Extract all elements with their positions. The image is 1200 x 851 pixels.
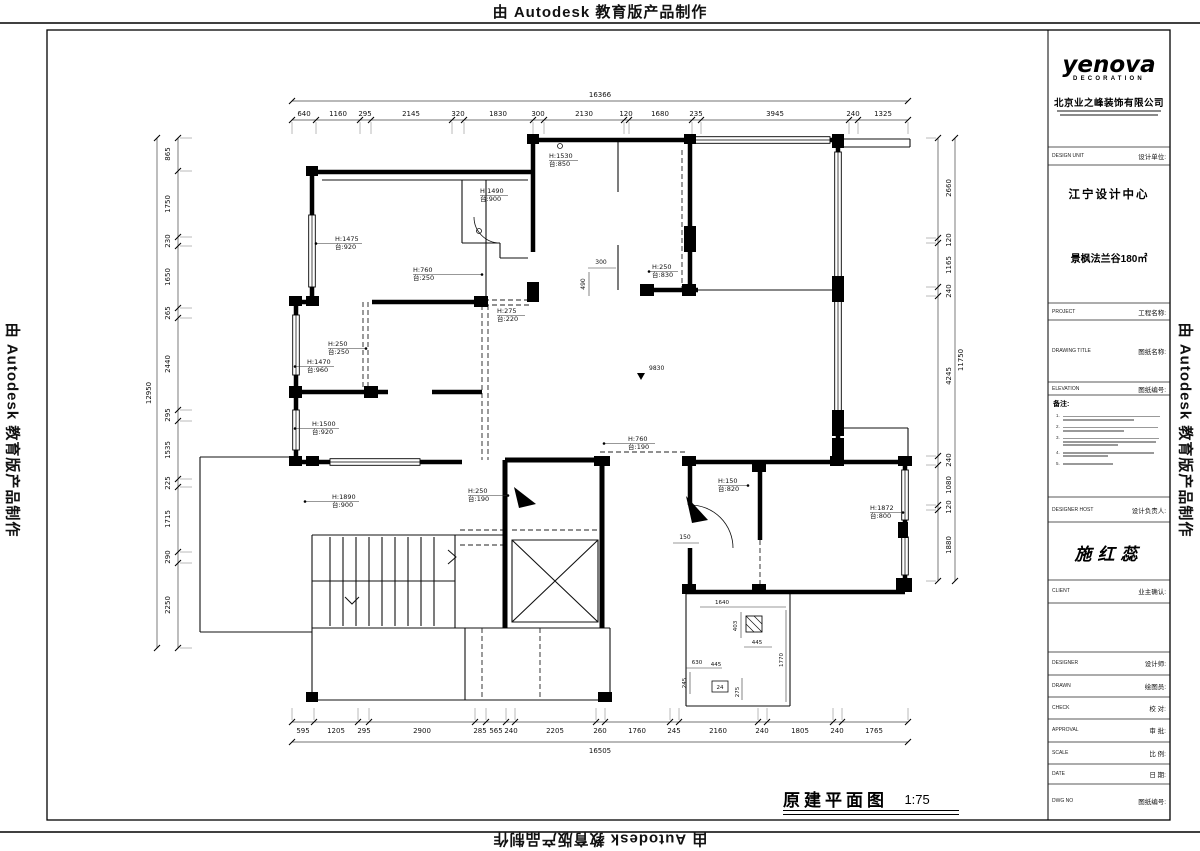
drawing-title-scale: 1:75: [904, 792, 929, 807]
walls: [296, 140, 905, 628]
designer-host-row: DESIGNER HOST 设计负责人:: [1052, 505, 1166, 515]
svg-text:1650: 1650: [164, 268, 172, 286]
svg-text:2130: 2130: [575, 110, 593, 118]
svg-text:16366: 16366: [589, 91, 612, 99]
logo-yenova-text: yenova: [1048, 52, 1170, 78]
svg-text:1750: 1750: [164, 195, 172, 213]
check-row: CHECK 校 对:: [1052, 703, 1166, 713]
svg-text:H:1470: H:1470: [307, 358, 331, 366]
svg-text:1715: 1715: [164, 510, 172, 528]
svg-text:445: 445: [711, 662, 722, 668]
svg-text:295: 295: [358, 110, 371, 118]
svg-text:1765: 1765: [865, 727, 883, 735]
svg-text:295: 295: [357, 727, 370, 735]
elevation-row: ELEVATION 图纸编号:: [1052, 384, 1166, 394]
thin-lines: [200, 139, 910, 706]
svg-text:235: 235: [689, 110, 702, 118]
svg-text:H:250: H:250: [468, 487, 487, 495]
svg-text:240: 240: [755, 727, 768, 735]
svg-text:H:1475: H:1475: [335, 235, 359, 243]
note-item: 3.: [1056, 436, 1164, 447]
svg-text:1205: 1205: [327, 727, 345, 735]
svg-text:台:820: 台:820: [718, 484, 739, 493]
svg-text:403: 403: [733, 620, 739, 631]
svg-text:300: 300: [595, 259, 607, 266]
svg-text:1165: 1165: [945, 256, 953, 274]
watermark-right: 由 Autodesk 教育版产品制作: [1176, 323, 1197, 538]
svg-text:1680: 1680: [651, 110, 669, 118]
note-item: 5.: [1056, 462, 1164, 467]
svg-text:H:1490: H:1490: [480, 187, 504, 195]
svg-text:490: 490: [580, 278, 587, 290]
level-marker-triangle: [637, 373, 645, 380]
svg-text:230: 230: [164, 234, 172, 247]
svg-text:台:960: 台:960: [307, 365, 328, 374]
svg-text:1805: 1805: [791, 727, 809, 735]
svg-text:225: 225: [164, 476, 172, 489]
svg-text:300: 300: [531, 110, 544, 118]
svg-text:1535: 1535: [164, 441, 172, 459]
note-item: 4.: [1056, 451, 1164, 459]
svg-text:台:800: 台:800: [870, 511, 891, 520]
designer-signature: 施红蕊: [1048, 540, 1170, 565]
svg-text:240: 240: [945, 453, 953, 466]
date-row: DATE 日 期:: [1052, 769, 1166, 779]
svg-text:H:250: H:250: [328, 340, 347, 348]
svg-text:1080: 1080: [945, 476, 953, 494]
drawn-row: DRAWN 绘图员:: [1052, 681, 1166, 691]
svg-text:台:190: 台:190: [628, 442, 649, 451]
svg-text:4245: 4245: [945, 367, 953, 385]
notes-title: 备注:: [1053, 399, 1069, 409]
watermark-top: 由 Autodesk 教育版产品制作: [0, 1, 1200, 22]
watermark-bottom: 由 Autodesk 教育版产品制作: [493, 830, 708, 851]
svg-text:16505: 16505: [589, 747, 611, 755]
svg-text:H:1872: H:1872: [870, 504, 894, 512]
dwg-no-row: DWG NO 图纸编号:: [1052, 796, 1166, 806]
svg-text:595: 595: [296, 727, 309, 735]
drawing-title-underline: [783, 810, 959, 811]
svg-text:台:850: 台:850: [549, 159, 570, 168]
cad-plot-sheet: { "watermark": { "text": "由 Autodesk 教育版…: [0, 0, 1200, 848]
svg-text:565: 565: [489, 727, 502, 735]
svg-text:445: 445: [752, 640, 763, 646]
svg-text:150: 150: [679, 534, 691, 541]
svg-text:120: 120: [945, 233, 953, 246]
svg-text:245: 245: [667, 727, 680, 735]
svg-text:260: 260: [593, 727, 606, 735]
svg-text:240: 240: [504, 727, 517, 735]
svg-text:1770: 1770: [779, 653, 785, 667]
svg-text:台:250: 台:250: [328, 347, 349, 356]
svg-text:台:190: 台:190: [468, 494, 489, 503]
approval-row: APPROVAL 审 批:: [1052, 725, 1166, 735]
svg-text:H:250: H:250: [652, 263, 671, 271]
design-center-name: 江宁设计中心: [1048, 186, 1170, 202]
svg-text:265: 265: [164, 306, 172, 319]
svg-text:3945: 3945: [766, 110, 784, 118]
svg-text:1880: 1880: [945, 536, 953, 554]
svg-text:台:250: 台:250: [413, 273, 434, 282]
door-leaves: [514, 373, 708, 523]
svg-text:台:900: 台:900: [480, 194, 501, 203]
svg-text:台:830: 台:830: [652, 270, 673, 279]
svg-text:240: 240: [830, 727, 843, 735]
svg-text:285: 285: [473, 727, 486, 735]
svg-text:H:275: H:275: [497, 307, 516, 315]
watermark-left: 由 Autodesk 教育版产品制作: [3, 323, 24, 538]
svg-text:2250: 2250: [164, 596, 172, 614]
svg-text:320: 320: [451, 110, 464, 118]
design-unit-row: DESIGN UNIT 设计单位:: [1052, 151, 1166, 161]
drawing-title: 原建平面图 1:75: [783, 786, 965, 811]
svg-text:120: 120: [619, 110, 632, 118]
svg-text:H:760: H:760: [413, 266, 432, 274]
svg-text:11750: 11750: [957, 349, 965, 371]
watermark-band-lines: [0, 23, 1200, 832]
svg-text:275: 275: [735, 686, 741, 697]
notes-list: 1. 2. 3. 4. 5.: [1048, 411, 1170, 469]
svg-text:12950: 12950: [145, 382, 153, 404]
svg-text:H:1530: H:1530: [549, 152, 573, 160]
svg-text:H:150: H:150: [718, 477, 737, 485]
note-item: 1.: [1056, 414, 1164, 422]
svg-text:24: 24: [717, 685, 724, 691]
project-row: PROJECT 工程名称:: [1052, 307, 1166, 317]
svg-text:H:1890: H:1890: [332, 493, 356, 501]
elevator-cross: [512, 540, 598, 622]
svg-text:1830: 1830: [489, 110, 507, 118]
drawing-title-row: DRAWING TITLE 图纸名称:: [1052, 346, 1166, 356]
svg-text:2660: 2660: [945, 179, 953, 197]
svg-text:1760: 1760: [628, 727, 646, 735]
elevator-shaft-walls: [505, 460, 602, 628]
svg-text:H:1500: H:1500: [312, 420, 336, 428]
dashed-lines: [363, 150, 760, 700]
svg-text:1160: 1160: [329, 110, 347, 118]
svg-text:295: 295: [164, 408, 172, 421]
svg-text:245: 245: [682, 677, 688, 688]
svg-text:2160: 2160: [709, 727, 727, 735]
svg-text:2205: 2205: [546, 727, 564, 735]
svg-text:1325: 1325: [874, 110, 892, 118]
svg-text:865: 865: [164, 147, 172, 160]
svg-text:2900: 2900: [413, 727, 431, 735]
svg-text:台:920: 台:920: [312, 427, 333, 436]
project-title: 景枫法兰谷180㎡: [1048, 250, 1170, 265]
stair-direction-arrows: [345, 550, 456, 604]
designer-row: DESIGNER 设计师:: [1052, 658, 1166, 668]
svg-text:290: 290: [164, 550, 172, 563]
svg-text:H:760: H:760: [628, 435, 647, 443]
note-item: 2.: [1056, 425, 1164, 433]
svg-text:2440: 2440: [164, 355, 172, 373]
svg-text:1640: 1640: [715, 600, 729, 606]
company-logo: yenova DECORATION: [1048, 52, 1170, 82]
floor-plan-drawing: 1636664011602952145320183030021301201680…: [0, 0, 1200, 848]
drawing-title-underline-2: [783, 814, 959, 815]
svg-text:台:920: 台:920: [335, 242, 356, 251]
svg-text:9830: 9830: [649, 365, 664, 372]
svg-text:120: 120: [945, 500, 953, 513]
svg-text:240: 240: [945, 284, 953, 297]
svg-text:2145: 2145: [402, 110, 420, 118]
drawing-title-text: 原建平面图: [783, 786, 888, 811]
svg-text:240: 240: [846, 110, 859, 118]
svg-text:台:900: 台:900: [332, 500, 353, 509]
client-row: CLIENT 业主确认:: [1052, 586, 1166, 596]
scale-row: SCALE 比 例:: [1052, 748, 1166, 758]
company-name: 北京业之峰装饰有限公司: [1048, 95, 1170, 109]
svg-text:640: 640: [297, 110, 310, 118]
company-fine-print: [1048, 108, 1170, 118]
svg-text:630: 630: [692, 660, 703, 666]
svg-text:台:220: 台:220: [497, 314, 518, 323]
